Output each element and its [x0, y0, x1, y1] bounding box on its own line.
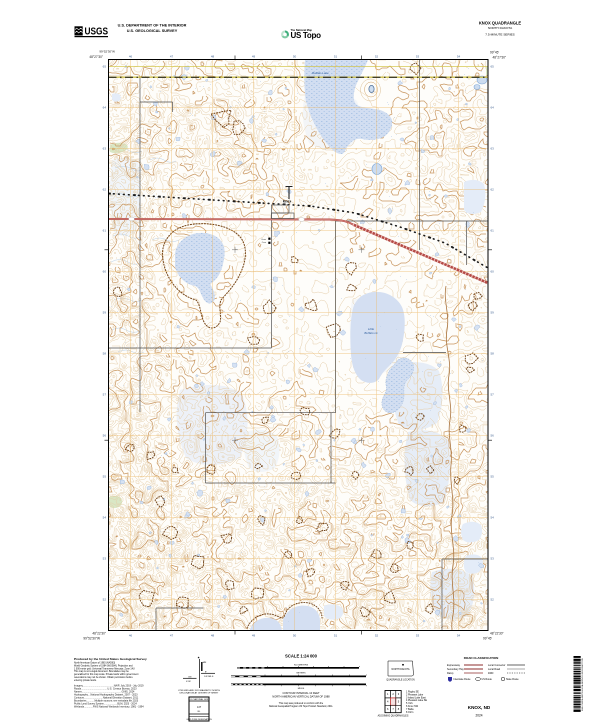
svg-text:61: 61: [491, 229, 495, 233]
svg-text:59: 59: [491, 311, 495, 315]
svg-text:50: 50: [293, 634, 297, 638]
svg-text:1 000-meter grid: Universal Tr: 1 000-meter grid: Universal Transverse M…: [74, 667, 135, 670]
svg-text:99°45': 99°45': [483, 637, 492, 641]
svg-text:61: 61: [103, 229, 107, 233]
svg-text:48°22'30": 48°22'30": [490, 632, 504, 636]
svg-text:65: 65: [103, 65, 107, 69]
svg-text:Secondary Hwy: Secondary Hwy: [447, 668, 465, 671]
svg-text:59: 59: [103, 311, 107, 315]
svg-text:48°22'30": 48°22'30": [92, 632, 106, 636]
svg-text:53: 53: [416, 634, 420, 638]
svg-text:State Route: State Route: [506, 678, 519, 681]
svg-text:★: ★: [197, 656, 200, 660]
svg-text:DECLINATION AT CENTER OF SHEET: DECLINATION AT CENTER OF SHEET: [180, 692, 219, 695]
svg-text:58: 58: [491, 352, 495, 356]
svg-text:Buffalo Lake: Buffalo Lake: [312, 71, 329, 75]
svg-text:generalized for this map scale: generalized for this map scale. Private …: [74, 673, 139, 676]
svg-text:52: 52: [375, 55, 379, 59]
svg-text:62: 62: [103, 188, 107, 192]
svg-text:Cem: Cem: [262, 242, 267, 244]
svg-text:This map is not a legal docume: This map is not a legal document. Bounda…: [74, 670, 129, 673]
svg-text:52: 52: [491, 598, 495, 602]
svg-text:US Topo: US Topo: [291, 31, 322, 40]
svg-text:This map was produced to confo: This map was produced to conform with th…: [279, 702, 324, 705]
svg-text:99°52'30"W: 99°52'30"W: [99, 50, 115, 54]
svg-text:U.S. GEOLOGICAL SURVEY: U.S. GEOLOGICAL SURVEY: [127, 29, 178, 33]
svg-text:World Geodetic System of 1984: World Geodetic System of 1984 (WGS84). P…: [74, 664, 133, 667]
svg-text:52: 52: [375, 634, 379, 638]
svg-text:57: 57: [103, 393, 107, 397]
svg-text:56: 56: [103, 434, 107, 438]
svg-text:Knox: Knox: [283, 200, 292, 204]
svg-text:GN: GN: [188, 677, 192, 679]
svg-text:North American Datum of 1983 (: North American Datum of 1983 (NAD83): [74, 662, 115, 665]
svg-text:65: 65: [491, 65, 495, 69]
svg-text:UTM GRID AND 2019 MAGNETIC NOR: UTM GRID AND 2019 MAGNETIC NORTH: [178, 689, 220, 692]
svg-text:64: 64: [491, 106, 495, 110]
svg-text:60: 60: [491, 270, 495, 274]
svg-text:54: 54: [491, 516, 495, 520]
svg-text:48: 48: [211, 634, 215, 638]
svg-text:142 MILS: 142 MILS: [204, 676, 214, 678]
svg-text:KILOMETERS: KILOMETERS: [294, 665, 309, 667]
svg-text:Local Connector: Local Connector: [488, 664, 506, 667]
svg-text:GRID ZONE DESIGNATION: GRID ZONE DESIGNATION: [186, 718, 212, 721]
svg-text:49: 49: [252, 55, 256, 59]
svg-text:51: 51: [334, 634, 338, 638]
svg-text:0°36': 0°36': [186, 681, 192, 683]
svg-text:4WD: 4WD: [488, 672, 494, 675]
svg-text:47: 47: [170, 634, 174, 638]
svg-text:62: 62: [491, 188, 495, 192]
svg-text:54: 54: [457, 634, 461, 638]
svg-text:U.S. DEPARTMENT OF THE INTERIO: U.S. DEPARTMENT OF THE INTERIOR: [118, 24, 187, 28]
svg-text:64: 64: [103, 106, 107, 110]
svg-text:53: 53: [491, 557, 495, 561]
svg-text:46: 46: [129, 55, 133, 59]
svg-text:54: 54: [103, 516, 107, 520]
svg-text:SCALE 1:24 000: SCALE 1:24 000: [285, 654, 318, 659]
svg-text:63: 63: [491, 147, 495, 151]
svg-text:Produced by the United States: Produced by the United States Geological…: [74, 657, 147, 661]
svg-text:NSN.7643014467551 NGA.REFNO: NSN.7643014467551 NGA.REFNO.USGSX24K7703…: [581, 657, 584, 711]
svg-text:USGS: USGS: [85, 27, 109, 38]
svg-text:99°45': 99°45': [490, 51, 499, 55]
svg-text:57: 57: [491, 393, 495, 397]
svg-text:ROAD CLASSIFICATION: ROAD CLASSIFICATION: [464, 656, 499, 660]
svg-text:51: 51: [334, 55, 338, 59]
svg-text:47: 47: [170, 55, 174, 59]
svg-text:55: 55: [491, 475, 495, 479]
svg-text:Ramp: Ramp: [447, 672, 454, 675]
svg-text:MN: MN: [203, 662, 207, 664]
svg-text:entering private lands.: entering private lands.: [74, 679, 97, 682]
svg-text:NORTH DAKOTA: NORTH DAKOTA: [488, 26, 513, 30]
svg-text:50: 50: [293, 55, 297, 59]
svg-text:US Route: US Route: [482, 678, 493, 681]
svg-text:METERS: METERS: [296, 673, 306, 675]
svg-text:49: 49: [252, 634, 256, 638]
svg-text:NORTH DAKOTA: NORTH DAKOTA: [391, 668, 410, 671]
svg-text:54: 54: [457, 55, 461, 59]
svg-text:7.5-MINUTE SERIES: 7.5-MINUTE SERIES: [485, 32, 514, 36]
svg-text:8°: 8°: [205, 672, 207, 674]
svg-text:60: 60: [103, 270, 107, 274]
svg-text:2024: 2024: [475, 714, 482, 718]
svg-text:53: 53: [416, 55, 420, 59]
svg-text:48°27'30": 48°27'30": [493, 56, 507, 60]
svg-text:Buffalo Lk: Buffalo Lk: [364, 331, 378, 335]
svg-text:ADJOINING QUADRANGLES: ADJOINING QUADRANGLES: [378, 715, 409, 718]
svg-text:48°27'30": 48°27'30": [89, 55, 103, 59]
svg-text:Local Road: Local Road: [488, 668, 501, 671]
svg-text:National Geospatial Program US: National Geospatial Program US Topo Prod…: [269, 705, 334, 708]
svg-text:99°52'30"W: 99°52'30"W: [83, 637, 100, 641]
svg-text:46: 46: [129, 634, 133, 638]
svg-text:55: 55: [103, 475, 107, 479]
svg-text:Expressway: Expressway: [447, 664, 461, 667]
svg-text:Interstate Route: Interstate Route: [454, 678, 472, 681]
svg-text:KNOX, ND: KNOX, ND: [468, 705, 491, 710]
svg-text:Knox: Knox: [261, 239, 266, 241]
svg-text:KNOX QUADRANGLE: KNOX QUADRANGLE: [479, 20, 522, 25]
svg-text:63: 63: [103, 147, 107, 151]
svg-text:53: 53: [103, 557, 107, 561]
svg-text:QUADRANGLE LOCATION: QUADRANGLE LOCATION: [386, 679, 415, 682]
svg-text:NORTH AMERICAN VERTICAL DATUM: NORTH AMERICAN VERTICAL DATUM OF 1988: [272, 694, 330, 698]
svg-text:56: 56: [491, 434, 495, 438]
svg-text:Wetlands.............FWS Natio: Wetlands.............FWS National Wetlan…: [74, 706, 144, 709]
svg-text:U.S. NATIONAL GRID: U.S. NATIONAL GRID: [189, 698, 209, 701]
svg-text:8 Orrin: 8 Orrin: [406, 711, 414, 714]
svg-text:reservations may not be shown.: reservations may not be shown. Obtain pe…: [74, 676, 133, 679]
svg-text:48: 48: [211, 55, 215, 59]
svg-text:14T: 14T: [197, 706, 202, 709]
svg-text:52: 52: [103, 598, 107, 602]
svg-text:MILES: MILES: [298, 688, 305, 690]
svg-text:58: 58: [103, 352, 107, 356]
